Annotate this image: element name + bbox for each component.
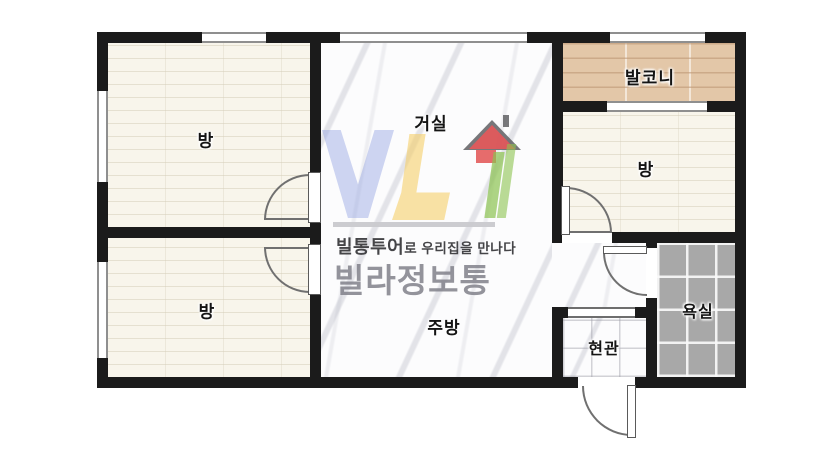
opening-bathroom-door [646, 248, 657, 298]
wall-outer-right [735, 32, 746, 388]
room-label-bottom-left: 방 [199, 298, 216, 323]
door-leaf-room-top-left [308, 172, 321, 223]
floor-plan: 빌통투어로 우리집을 만나다 빌라정보통 거실 주방 방 방 방 발코니 욕실 … [0, 0, 840, 472]
window-room-top-left [202, 32, 266, 43]
room-label-balcony: 발코니 [625, 64, 675, 89]
window-balcony-room [607, 101, 707, 112]
door-leaf-bathroom [603, 246, 647, 254]
room-label-kitchen: 주방 [427, 314, 460, 339]
room-label-living: 거실 [414, 110, 447, 135]
room-label-top-left: 방 [198, 127, 215, 152]
window-balcony-top [610, 32, 705, 43]
room-label-right: 방 [638, 156, 655, 181]
room-label-bathroom: 욕실 [682, 298, 713, 322]
door-leaf-room-right [561, 186, 570, 235]
window-living-top [340, 32, 527, 43]
door-leaf-room-bottom-left [308, 244, 321, 295]
window-left-upper [97, 91, 108, 182]
wall-left-rooms-divider [97, 227, 321, 238]
wall-entrance-left [552, 307, 563, 388]
door-arc-front [582, 386, 632, 436]
brand-underline [333, 222, 495, 227]
room-label-entrance: 현관 [588, 335, 619, 359]
brand-name: 빌라정보통 [334, 254, 491, 302]
opening-entrance-hall [568, 307, 635, 318]
window-left-lower [97, 262, 108, 358]
door-leaf-front [627, 385, 636, 438]
house-icon-chimney [503, 115, 509, 127]
